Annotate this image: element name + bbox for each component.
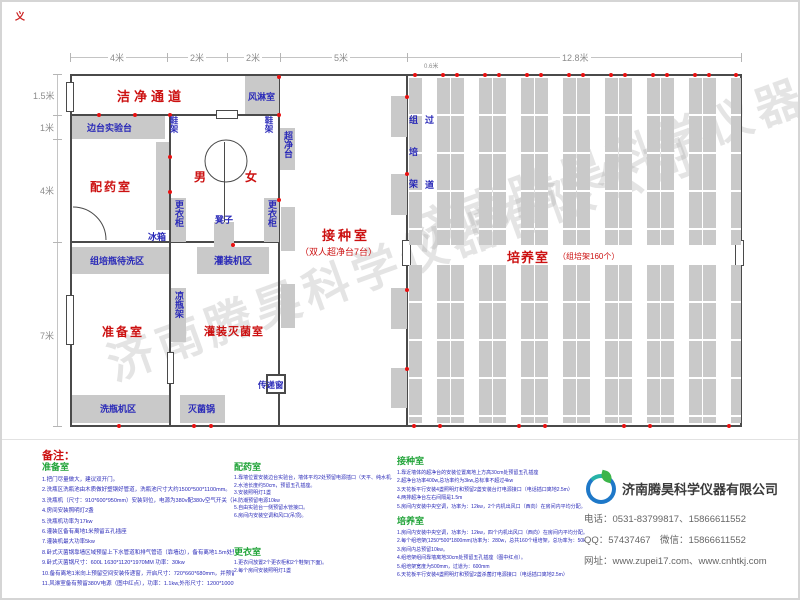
company-phone: 电话：0531-83799817、15866611552	[584, 511, 789, 525]
outlet-dot	[412, 424, 416, 428]
top-dimension-line	[70, 57, 742, 58]
note-item: 2.超净台功率400w,总功率约为3kw,总标准不超过4kw	[397, 477, 585, 485]
room-prep: 准备室	[102, 323, 144, 340]
label-filling-machine: 灌装机区	[214, 253, 252, 267]
room-filling-sterilization: 灌装灭菌室	[204, 323, 264, 339]
company-qq-wechat: QQ：57437467 微信：15866611552	[584, 532, 789, 546]
outlet-dot	[438, 424, 442, 428]
label-sterilizer: 灭菌锅	[188, 402, 215, 415]
dim-top-12.8m: 12.8米	[560, 51, 591, 64]
shelf-column	[731, 265, 741, 423]
floor-plan-page: 义 济南腾昊科学仪器有限公司 济南腾昊科学仪器有限公司 4米 2米 2米 5米 …	[0, 0, 800, 600]
notes-heading-inoculation: 接种室	[397, 454, 585, 467]
note-item: 5.洗瓶机功率为17kw	[42, 517, 234, 527]
note-item: 5.组培架宽度为500mm，过道为：600mm	[397, 563, 585, 571]
shelf-column	[661, 78, 674, 245]
clean-bench	[281, 207, 295, 251]
label-shoe-rack-left: 鞋架	[168, 116, 180, 133]
note-item: 1.把门尽量做大，建议双开门。	[42, 475, 234, 485]
dim-top-2m-b: 2米	[244, 51, 262, 64]
label-side-bench: 边台实验台	[87, 121, 132, 134]
shelf-column	[409, 265, 422, 423]
room-inoculation-sub: （双人超净台7台）	[300, 245, 377, 258]
note-item: 1.房间内安装中央空调，功率为：12kw，四个内机出风口（西向）在房间内平均分配…	[397, 529, 585, 537]
outlet-dot	[581, 73, 585, 77]
label-rack-column: 组培架	[407, 115, 420, 211]
notes-list-dispensing: 1.靠墙位置安装边台实验台，墙体平均2处预留电源插口（天平、纯水机、蒸馏器、磁力…	[234, 475, 392, 521]
outlet-dot	[623, 73, 627, 77]
outlet-dot	[622, 424, 626, 428]
door-changing-entry	[216, 110, 238, 119]
note-item: 6.天花板平行安装4盏照明灯和预留2盏杀菌灯电源接口（电话插口离地2.5m）	[397, 571, 585, 579]
dim-tick	[280, 53, 281, 62]
note-item: 1.更衣间放置2个更衣柜和2个鞋架(下面)。	[234, 560, 392, 568]
note-item: 10.备有离地1米向上预留空间安装传递窗，开启尺寸：720*660*680mm，…	[42, 569, 234, 579]
outlet-dot	[277, 113, 281, 117]
shelf-column	[703, 265, 716, 423]
label-pass-window: 传递窗	[258, 379, 284, 391]
window-prep-left	[66, 295, 74, 345]
outlet-dot	[483, 73, 487, 77]
label-aisle-column: 过道	[423, 115, 436, 245]
left-dimension-line	[57, 74, 58, 427]
shelf-column	[535, 78, 548, 245]
note-item: 9.卧式灭菌锅尺寸：600L 1630*1120*1970MM 功率：30kw	[42, 558, 234, 568]
label-wash-wait: 组培瓶待洗区	[90, 254, 144, 267]
outlet-dot	[231, 243, 235, 247]
dim-tick	[167, 53, 168, 62]
shelf-column	[661, 265, 674, 423]
clean-bench	[391, 288, 407, 329]
label-cool-rack: 凉瓶架	[173, 291, 186, 318]
outlet-dot	[648, 424, 652, 428]
shelf-column	[647, 78, 660, 245]
notes-col-changing: 更衣室 1.更衣间放置2个更衣柜和2个鞋架(下面)。2.每个房间安装照明灯1盏	[234, 545, 392, 590]
shelf-column	[703, 78, 716, 245]
dim-tick	[741, 53, 742, 62]
shelf-column	[521, 78, 534, 245]
room-clean-corridor: 洁净通道	[117, 86, 185, 105]
shelf-column	[577, 78, 590, 245]
shelf-column	[605, 78, 618, 245]
notes-col-dispensing: 配药室 1.靠墙位置安装边台实验台，墙体平均2处预留电源插口（天平、纯水机、蒸馏…	[234, 460, 392, 540]
company-website: 网址：www.zupei17.com、www.cnhtkj.com	[584, 553, 789, 567]
note-item: 3.天花板平行安装4盏照明灯和预留2盏安装台灯电源接口（电话插口离地2.5m）	[397, 486, 585, 494]
dim-top-4m: 4米	[108, 51, 126, 64]
dim-aisle-0.6m: 0.6米	[422, 61, 440, 70]
outlet-dot	[192, 424, 196, 428]
outlet-dot	[707, 73, 711, 77]
shelf-column	[689, 78, 702, 245]
outlet-dot	[117, 424, 121, 428]
notes-col-prep: 准备室 1.把门尽量做大，建议双开门。2.洗瓶区洗瓶池由木质做好塑钢好管道，洗瓶…	[42, 460, 234, 595]
dim-left-4m: 4米	[38, 184, 56, 197]
outlet-dot	[567, 73, 571, 77]
outlet-dot	[543, 424, 547, 428]
dim-tick	[70, 53, 71, 62]
dim-left-1.5m: 1.5米	[31, 89, 57, 102]
shelf-column	[731, 78, 741, 245]
outlet-dot	[539, 73, 543, 77]
room-inoculation: 接种室	[322, 225, 370, 244]
shelf-column	[647, 265, 660, 423]
room-culture: 培养室	[507, 247, 549, 266]
note-item: 3.洗瓶机（尺寸：910*600*950mm）安装到位，电源为380v配380v…	[42, 496, 234, 506]
note-item: 6.房间内安装空调和风口(吊顶)。	[234, 513, 392, 521]
room-female: 女	[245, 168, 257, 185]
outlet-dot	[651, 73, 655, 77]
outlet-dot	[609, 73, 613, 77]
note-item: 1.靠墙位置安装边台实验台，墙体平均2处预留电源插口（天平、纯水机、蒸馏器、磁力…	[234, 475, 392, 483]
notes-list-inoculation: 1.靠近墙体的超净台的安装位置离地上方高30cm处预留五孔插座2.超净台功率40…	[397, 469, 585, 511]
notes-heading-changing: 更衣室	[234, 545, 392, 558]
label-fridge: 冰箱	[148, 230, 166, 243]
note-item: 11.风淋室备有预留380V电源（图中红点），功率：1.1kw,外形尺寸：120…	[42, 579, 234, 589]
outlet-dot	[405, 288, 409, 292]
outlet-dot	[405, 95, 409, 99]
outlet-dot	[517, 424, 521, 428]
outlet-dot	[727, 424, 731, 428]
clean-bench	[391, 96, 407, 137]
shelf-column	[563, 78, 576, 245]
note-item: 3.房间内总预留10kw。	[397, 546, 585, 554]
label-locker-right: 更衣柜	[266, 200, 279, 227]
fridge-box	[156, 142, 169, 230]
company-block: 济南腾昊科学仪器有限公司 电话：0531-83799817、1586661155…	[584, 472, 789, 567]
note-item: 5.房间内安装中央空调，功率为：12kw，2个内机出风口（西向）在房间内平均分配…	[397, 503, 585, 511]
window-corridor-left	[66, 82, 74, 112]
dim-tick	[407, 53, 408, 62]
company-name: 济南腾昊科学仪器有限公司	[622, 479, 778, 498]
room-male: 男	[194, 168, 206, 185]
outlet-dot	[413, 73, 417, 77]
notes-list-culture: 1.房间内安装中央空调，功率为：12kw，四个内机出风口（西向）在房间内平均分配…	[397, 529, 585, 579]
shelf-column	[535, 265, 548, 423]
shelf-column	[619, 265, 632, 423]
outlet-dot	[209, 424, 213, 428]
outlet-dot	[168, 155, 172, 159]
outlet-dot	[734, 73, 738, 77]
outlet-dot	[665, 73, 669, 77]
dim-tick	[53, 139, 62, 140]
clean-bench	[281, 284, 295, 328]
notes-col-inoculation: 接种室 1.靠近墙体的超净台的安装位置离地上方高30cm处预留五孔插座2.超净台…	[397, 454, 585, 514]
shelf-column	[577, 265, 590, 423]
notes-col-culture: 培养室 1.房间内安装中央空调，功率为：12kw，四个内机出风口（西向）在房间内…	[397, 514, 585, 589]
shelf-column	[563, 265, 576, 423]
label-locker-left: 更衣柜	[173, 200, 186, 227]
dim-left-7m: 7米	[38, 329, 56, 342]
dim-top-5m: 5米	[332, 51, 350, 64]
dim-left-1m: 1米	[38, 121, 56, 134]
note-item: 3.安装照明灯1盏	[234, 490, 392, 498]
label-air-shower: 风淋室	[248, 90, 275, 103]
dim-tick	[227, 53, 228, 62]
shelf-column	[493, 265, 506, 423]
note-item: 6.灌装区备有离地1米预留五孔插座	[42, 527, 234, 537]
shelf-column	[451, 265, 464, 423]
note-item: 2.每个组培架(1250*500*1800mm)功率为：280w，总共160个组…	[397, 537, 585, 545]
shelf-column	[437, 265, 450, 423]
note-item: 2.洗瓶区洗瓶池由木质做好塑钢好管道，洗瓶池尺寸大约1500*500*1100m…	[42, 485, 234, 495]
dim-tick	[53, 74, 62, 75]
note-item: 4.房间安装照明灯2盏	[42, 506, 234, 516]
dim-tick	[53, 426, 62, 427]
shelf-column	[619, 78, 632, 245]
outlet-dot	[497, 73, 501, 77]
room-culture-sub: （组培架160个）	[558, 251, 619, 262]
note-item: 5.自由实验台一侧预留水管接口。	[234, 505, 392, 513]
dim-top-2m-a: 2米	[188, 51, 206, 64]
notes-heading-prep: 准备室	[42, 460, 234, 473]
window-prep-inner	[167, 352, 174, 384]
label-shoe-rack-right: 鞋架	[263, 116, 275, 133]
label-washer-area: 洗瓶机区	[100, 402, 136, 415]
outlet-dot	[455, 73, 459, 77]
notes-heading-dispensing: 配药室	[234, 460, 392, 473]
outlet-dot	[97, 113, 101, 117]
notes-heading-culture: 培养室	[397, 514, 585, 527]
dim-tick	[53, 242, 62, 243]
corner-mark: 义	[15, 8, 25, 23]
outlet-dot	[441, 73, 445, 77]
section-divider	[2, 439, 800, 440]
shelf-column	[479, 78, 492, 245]
outlet-dot	[277, 75, 281, 79]
shelf-column	[521, 265, 534, 423]
notes-list-prep: 1.把门尽量做大，建议双开门。2.洗瓶区洗瓶池由木质做好塑钢好管道，洗瓶池尺寸大…	[42, 475, 234, 589]
label-clean-bench: 超净台	[282, 131, 295, 158]
note-item: 7.灌装机最大功率5kw	[42, 537, 234, 547]
company-logo-icon	[584, 472, 616, 504]
dim-tick	[53, 115, 62, 116]
shelf-column	[689, 265, 702, 423]
shelf-column	[437, 78, 450, 245]
note-item: 1.靠近墙体的超净台的安装位置离地上方高30cm处预留五孔插座	[397, 469, 585, 477]
outlet-dot	[168, 190, 172, 194]
outlet-dot	[133, 113, 137, 117]
shelf-column	[493, 78, 506, 245]
label-stool: 凳子	[215, 213, 233, 226]
room-dispensing: 配药室	[90, 178, 132, 195]
outlet-dot	[525, 73, 529, 77]
shelf-column	[479, 265, 492, 423]
note-item: 4.两排超净台左右间隔是1.5m	[397, 494, 585, 502]
outlet-dot	[693, 73, 697, 77]
shelf-column	[605, 265, 618, 423]
note-item: 2.每个房间安装照明灯1盏	[234, 568, 392, 576]
notes-list-changing: 1.更衣间放置2个更衣柜和2个鞋架(下面)。2.每个房间安装照明灯1盏	[234, 560, 392, 575]
clean-bench	[391, 368, 407, 408]
outlet-dot	[405, 367, 409, 371]
shelf-column	[451, 78, 464, 245]
clean-bench	[391, 174, 407, 215]
note-item: 8.卧式灭菌锅靠墙区域预留上下水管道和排气管道（靠墙边），备有离地1.5m处预留…	[42, 548, 234, 558]
note-item: 4.组培架组间靠墙离地30cm处预留五孔插座（图中红点）。	[397, 554, 585, 562]
